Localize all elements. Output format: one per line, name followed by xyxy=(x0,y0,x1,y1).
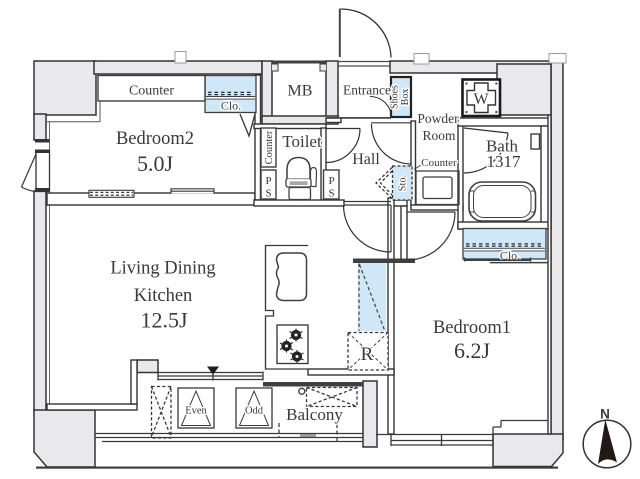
svg-text:Hall: Hall xyxy=(352,151,380,168)
svg-text:Powder: Powder xyxy=(417,111,459,126)
svg-text:Clo.: Clo. xyxy=(221,99,241,113)
svg-text:Kitchen: Kitchen xyxy=(134,286,193,306)
svg-text:R: R xyxy=(361,344,374,365)
svg-text:P: P xyxy=(328,175,334,187)
svg-text:Entrance: Entrance xyxy=(343,83,391,98)
svg-text:MB: MB xyxy=(288,83,313,100)
svg-text:Bedroom2: Bedroom2 xyxy=(116,129,194,149)
svg-text:N: N xyxy=(600,407,610,422)
svg-text:1317: 1317 xyxy=(487,152,522,171)
svg-text:Sto.: Sto. xyxy=(398,175,409,192)
svg-text:Counter: Counter xyxy=(129,84,174,99)
svg-text:W: W xyxy=(473,91,489,108)
svg-text:5.0J: 5.0J xyxy=(137,151,174,176)
svg-text:Counter: Counter xyxy=(421,157,457,169)
svg-text:Room: Room xyxy=(422,128,456,143)
svg-text:S: S xyxy=(328,188,334,200)
svg-text:6.2J: 6.2J xyxy=(454,338,491,363)
svg-text:12.5J: 12.5J xyxy=(140,308,188,333)
svg-text:Bedroom1: Bedroom1 xyxy=(433,318,511,338)
svg-text:S: S xyxy=(265,188,271,200)
svg-text:Odd: Odd xyxy=(245,406,264,417)
svg-text:Living Dining: Living Dining xyxy=(110,259,215,279)
svg-text:Even: Even xyxy=(185,406,207,417)
svg-text:Toilet: Toilet xyxy=(282,132,322,151)
svg-text:Balcony: Balcony xyxy=(286,405,343,424)
svg-text:Counter: Counter xyxy=(264,130,275,164)
svg-text:P: P xyxy=(265,175,271,187)
